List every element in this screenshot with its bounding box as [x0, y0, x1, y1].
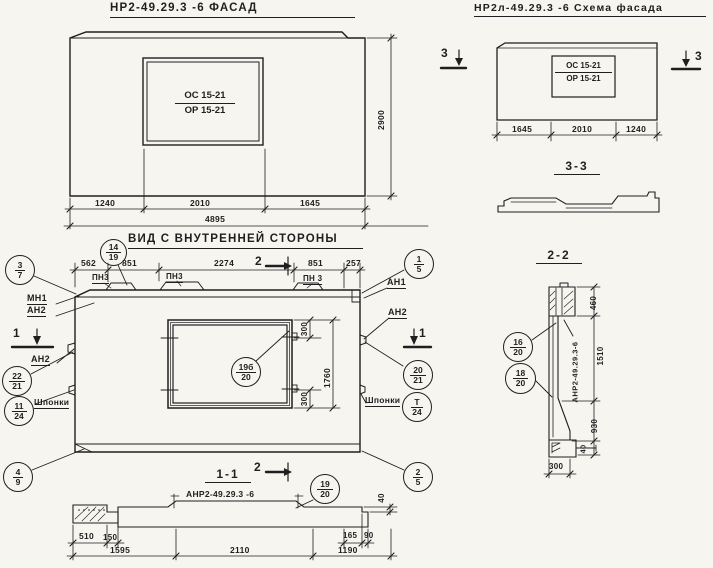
section-3-3-profile	[498, 192, 659, 212]
facade-dimension-lines	[64, 34, 428, 229]
inner-panel-outline	[68, 282, 366, 452]
callout-19b-20: 19б20	[231, 357, 261, 387]
anchor-label-an2-left: АН2	[31, 355, 50, 366]
cut-mark-2-bottom: 2	[254, 461, 261, 473]
s22-dim-40: 40	[579, 445, 587, 454]
callout-16-20: 1620	[503, 332, 533, 362]
schema-window-mark: ОС 15-21 ОР 15-21	[555, 61, 612, 84]
window-mark-line2: ОР 15-21	[175, 104, 235, 117]
facade-title: НР2-49.29.3 -6 ФАСАД	[110, 3, 355, 18]
inner-dim-562: 562	[81, 259, 96, 268]
s11-dim-40: 40	[378, 493, 386, 503]
facade-dim-1240: 1240	[95, 199, 115, 208]
schema-dim-2010: 2010	[572, 125, 592, 134]
inner-dim-257: 257	[346, 259, 361, 268]
inner-window-frame	[161, 320, 299, 408]
drawing-sheet: НР2-49.29.3 -6 ФАСАД ОС 15-21 ОР 15-21 1…	[0, 0, 713, 568]
schema-dim-1240: 1240	[626, 125, 646, 134]
s11-dim-90: 90	[364, 532, 374, 540]
s11-dim-150: 150	[103, 534, 117, 542]
anchor-label-an1: АН1	[387, 278, 406, 289]
s11-dim-1190: 1190	[338, 546, 358, 555]
embed-label-pn3-1: ПН3	[92, 274, 109, 284]
callout-22-21: 2221	[2, 366, 32, 396]
s11-dim-1595: 1595	[110, 546, 130, 555]
window-mark-line1: ОС 15-21	[175, 90, 235, 104]
callout-14-19: 1419	[100, 239, 127, 266]
cut-mark-3-left: 3	[441, 47, 448, 59]
facade-dim-total: 4895	[205, 215, 225, 224]
embed-label-pn3-2: ПН3	[166, 273, 183, 283]
keys-label-right: Шпонки	[365, 396, 400, 407]
window-mark-line2: ОР 15-21	[555, 73, 612, 84]
schema-title: НР2л-49.29.3 -6 Схема фасада	[474, 3, 706, 17]
callout-2-5: 25	[403, 462, 433, 492]
s22-dim-1510: 1510	[597, 347, 605, 366]
section-3-3-title: 3-3	[554, 160, 600, 175]
section-2-2-title: 2-2	[536, 249, 582, 264]
section-1-1-subtitle: АНР2-49.29.3 -6	[186, 490, 254, 499]
inner-dim-2274: 2274	[214, 259, 234, 268]
inner-view-title: ВИД С ВНУТРЕННЕЙ СТОРОНЫ	[128, 234, 363, 249]
window-dim-300-top: 300	[301, 322, 309, 336]
callout-3-7: 37	[5, 255, 35, 285]
anchor-label-an2-top-left: АН2	[27, 306, 46, 317]
callout-1-5: 15	[404, 249, 434, 279]
embed-label-pn3-3: ПН 3	[303, 275, 322, 285]
facade-window-mark: ОС 15-21 ОР 15-21	[175, 90, 235, 117]
section-2-2-leaders	[532, 320, 573, 397]
facade-dim-1645: 1645	[300, 199, 320, 208]
window-mark-line1: ОС 15-21	[555, 61, 612, 73]
window-dim-1760: 1760	[323, 368, 332, 388]
callout-11-24: 1124	[4, 396, 34, 426]
anchor-label-an2-right: АН2	[388, 308, 407, 319]
callout-4-9: 49	[3, 462, 33, 492]
callout-t-24: Т24	[402, 392, 432, 422]
inner-dimension-lines	[70, 263, 365, 411]
cut-mark-1-left: 1	[13, 327, 20, 339]
keys-label-left: Шпонки	[34, 398, 69, 409]
s11-dim-165: 165	[343, 532, 357, 540]
section-1-1-title: 1-1	[205, 468, 251, 483]
s22-dim-300: 300	[549, 463, 563, 471]
callout-20-21: 2021	[403, 360, 433, 390]
drawing-linework	[0, 0, 713, 568]
cut-mark-1-right: 1	[419, 327, 426, 339]
cut-mark-3-right: 3	[695, 50, 702, 62]
facade-dim-height: 2900	[377, 110, 386, 130]
cut-mark-2-top: 2	[255, 255, 262, 267]
callout-18-20: 1820	[505, 363, 536, 394]
anchor-label-mn1: МН1	[27, 294, 47, 305]
s22-dim-930: 930	[591, 419, 599, 433]
s22-dim-460: 460	[590, 296, 598, 310]
facade-dim-2010: 2010	[190, 199, 210, 208]
s11-dim-510: 510	[79, 532, 94, 541]
s11-dim-2110: 2110	[230, 546, 250, 555]
window-dim-300-bottom: 300	[301, 392, 309, 406]
callout-19-20: 1920	[310, 474, 340, 504]
schema-dim-1645: 1645	[512, 125, 532, 134]
inner-leader-lines	[31, 265, 404, 470]
inner-dim-851b: 851	[308, 259, 323, 268]
s22-marking-vertical: АНР2-49.29.3-6	[571, 341, 579, 402]
